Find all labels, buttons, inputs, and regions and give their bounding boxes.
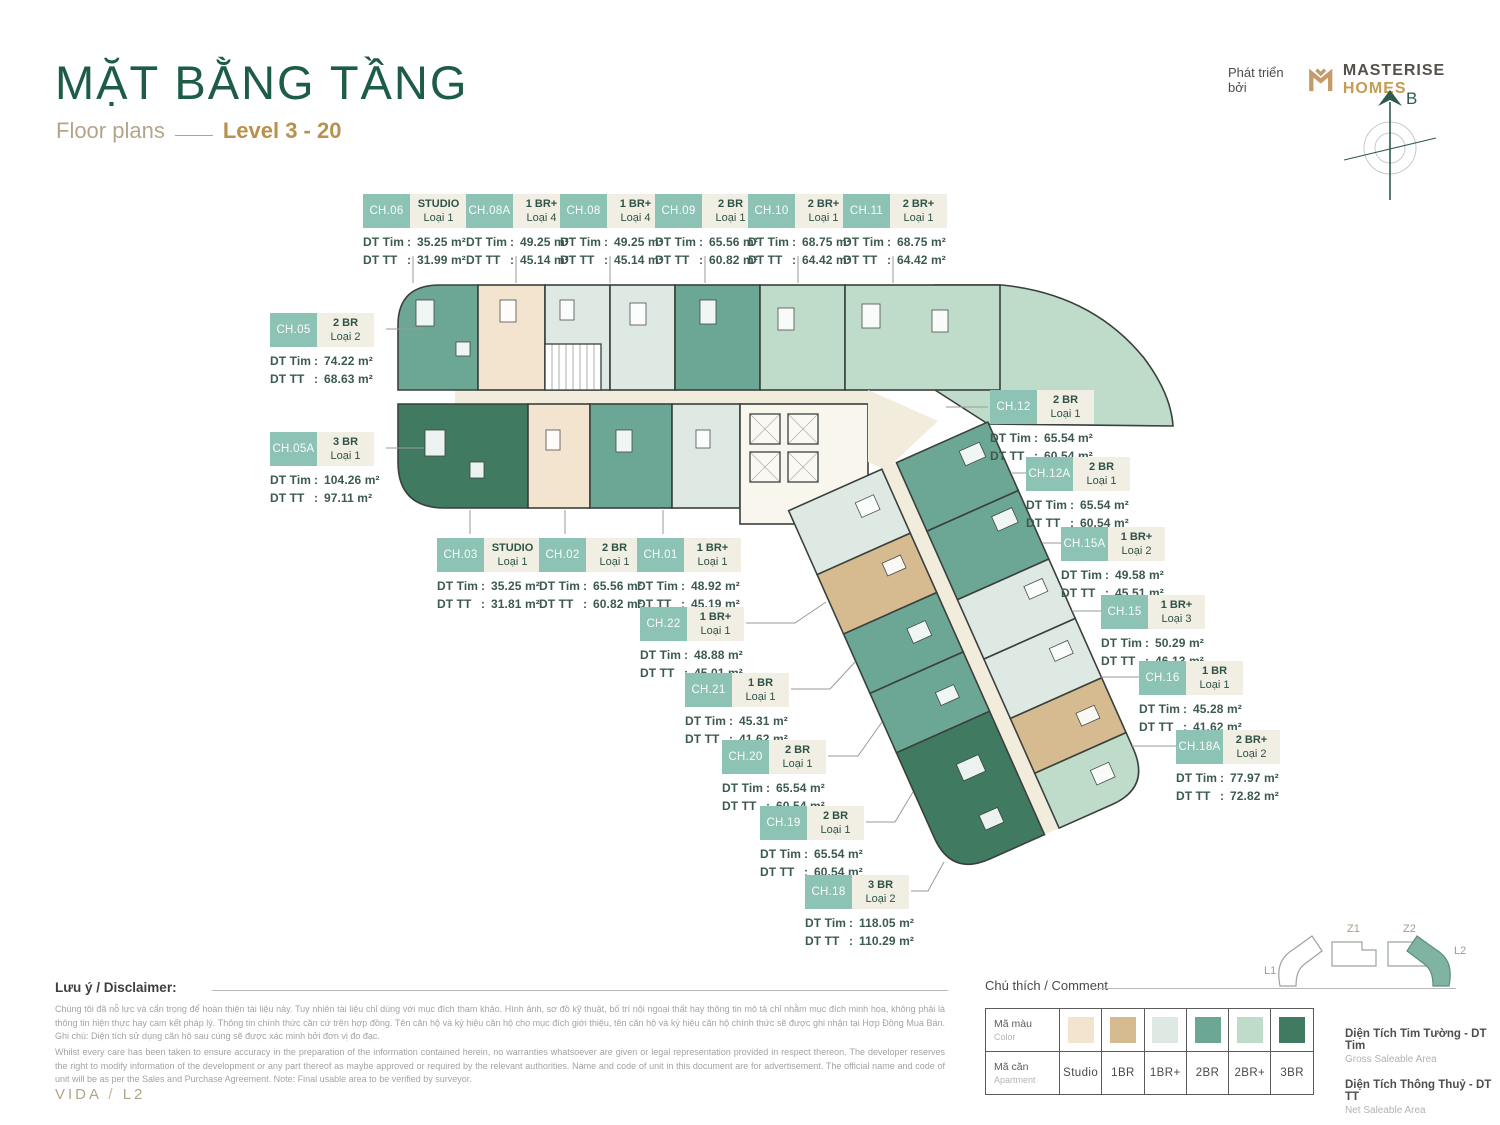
gross-area-row: DT Tim : 74.22 m²: [270, 352, 400, 370]
unit-region-ch08: [610, 285, 675, 390]
unit-type: 2 BR: [1089, 460, 1114, 474]
gross-area-label: DT Tim: [760, 845, 804, 863]
legend-heading: Chú thích / Comment: [985, 978, 1108, 993]
gross-area-row: DT Tim : 77.97 m²: [1176, 769, 1306, 787]
unit-id-badge: CH.03: [437, 538, 484, 572]
unit-type-badge: 1 BR+ Loại 1: [687, 607, 744, 641]
gross-area-label: DT Tim: [437, 577, 481, 595]
unit-callout: CH.18A 2 BR+ Loại 2 DT Tim : 77.97 m² DT…: [1176, 730, 1306, 805]
gross-area-label: DT Tim: [843, 233, 887, 251]
unit-chip: CH.05A 3 BR Loại 1: [270, 432, 374, 466]
unit-variant: Loại 3: [1162, 612, 1192, 626]
unit-chip: CH.08A 1 BR+ Loại 4: [466, 194, 570, 228]
net-area-label: DT TT: [270, 370, 314, 388]
unit-chip: CH.08 1 BR+ Loại 4: [560, 194, 664, 228]
legend-apartment-type: 2BR+: [1234, 1067, 1265, 1079]
unit-type: 2 BR+: [1236, 733, 1268, 747]
legend-apartment-row-label: Mã cănApartment: [986, 1052, 1060, 1095]
unit-chip: CH.20 2 BR Loại 1: [722, 740, 826, 774]
net-area-value: 31.99 m²: [417, 251, 466, 269]
legend-swatch-cell: [1102, 1009, 1144, 1052]
unit-callout: CH.11 2 BR+ Loại 1 DT Tim : 68.75 m² DT …: [843, 194, 973, 269]
net-area-row: DT TT : 64.42 m²: [843, 251, 973, 269]
unit-type-badge: 2 BR Loại 2: [317, 313, 374, 347]
legend-table: Mã màu Color Mã cănApartmentStudio1BR1BR…: [985, 1008, 1314, 1095]
net-area-label: DT TT: [640, 664, 684, 682]
legend-notes: Diện Tích Tim Tường - DT Tim Gross Salea…: [1345, 1028, 1500, 1125]
unit-type: 1 BR: [748, 676, 773, 690]
disclaimer-text-vi: Chúng tôi đã nỗ lực và cẩn trọng để hoàn…: [55, 1003, 945, 1044]
unit-type: 3 BR: [333, 435, 358, 449]
gross-area-row: DT Tim : 50.29 m²: [1101, 634, 1231, 652]
unit-variant: Loại 1: [809, 211, 839, 225]
unit-chip: CH.12A 2 BR Loại 1: [1026, 457, 1130, 491]
unit-id-badge: CH.05A: [270, 432, 317, 466]
unit-chip: CH.16 1 BR Loại 1: [1139, 661, 1243, 695]
unit-region-ch11: [845, 285, 1000, 390]
unit-region-ch05: [398, 285, 478, 390]
locator-label-z1: Z1: [1347, 923, 1360, 935]
unit-id-badge: CH.18: [805, 875, 852, 909]
unit-areas: DT Tim : 68.75 m² DT TT : 64.42 m²: [843, 233, 973, 269]
gross-area-label: DT Tim: [637, 577, 681, 595]
net-area-label: DT TT: [560, 251, 604, 269]
unit-id-badge: CH.15A: [1061, 527, 1108, 561]
unit-type-badge: 3 BR Loại 1: [317, 432, 374, 466]
footer-separator: /: [108, 1086, 115, 1103]
unit-id-badge: CH.20: [722, 740, 769, 774]
unit-type: 2 BR: [718, 197, 743, 211]
unit-variant: Loại 2: [866, 892, 896, 906]
gross-area-label: DT Tim: [466, 233, 510, 251]
unit-type: 2 BR+: [808, 197, 840, 211]
unit-id-badge: CH.02: [539, 538, 586, 572]
gross-area-row: DT Tim : 118.05 m²: [805, 914, 935, 932]
unit-type: 2 BR: [785, 743, 810, 757]
legend-apartment-type: 1BR: [1111, 1067, 1135, 1079]
unit-variant: Loại 1: [600, 555, 630, 569]
unit-chip: CH.11 2 BR+ Loại 1: [843, 194, 947, 228]
unit-variant: Loại 4: [621, 211, 651, 225]
unit-chip: CH.22 1 BR+ Loại 1: [640, 607, 744, 641]
net-area-label: DT TT: [363, 251, 407, 269]
unit-callout: CH.19 2 BR Loại 1 DT Tim : 65.54 m² DT T…: [760, 806, 890, 881]
unit-region-ch01: [672, 404, 740, 508]
unit-id-badge: CH.12: [990, 390, 1037, 424]
unit-callout: CH.22 1 BR+ Loại 1 DT Tim : 48.88 m² DT …: [640, 607, 770, 682]
unit-callout: CH.21 1 BR Loại 1 DT Tim : 45.31 m² DT T…: [685, 673, 815, 748]
net-area-label: DT TT: [270, 489, 314, 507]
unit-type-badge: 2 BR Loại 1: [1037, 390, 1094, 424]
unit-callout: CH.16 1 BR Loại 1 DT Tim : 45.28 m² DT T…: [1139, 661, 1269, 736]
gross-area-value: 45.28 m²: [1193, 700, 1242, 718]
unit-variant: Loại 1: [783, 757, 813, 771]
net-area-label: DT TT: [760, 863, 804, 881]
unit-variant: Loại 1: [698, 555, 728, 569]
gross-area-label: DT Tim: [560, 233, 604, 251]
unit-type-badge: 2 BR Loại 1: [769, 740, 826, 774]
unit-type: 1 BR+: [526, 197, 558, 211]
gross-area-row: DT Tim : 104.26 m²: [270, 471, 400, 489]
unit-variant: Loại 2: [1122, 544, 1152, 558]
unit-variant: Loại 2: [331, 330, 361, 344]
net-area-note: Diện Tích Thông Thuỷ - DT TT Net Saleabl…: [1345, 1079, 1500, 1116]
unit-type: 1 BR+: [1121, 530, 1153, 544]
gross-area-label: DT Tim: [539, 577, 583, 595]
gross-area-value: 48.88 m²: [694, 646, 743, 664]
unit-id-badge: CH.19: [760, 806, 807, 840]
legend-name-cell: 2BR+: [1229, 1052, 1271, 1095]
gross-area-label: DT Tim: [270, 471, 314, 489]
unit-chip: CH.09 2 BR Loại 1: [655, 194, 759, 228]
unit-chip: CH.03 STUDIO Loại 1: [437, 538, 541, 572]
unit-type: 2 BR+: [903, 197, 935, 211]
unit-chip: CH.21 1 BR Loại 1: [685, 673, 789, 707]
legend-swatch: [1110, 1017, 1136, 1043]
legend-swatch-cell: [1271, 1009, 1313, 1052]
unit-id-badge: CH.22: [640, 607, 687, 641]
gross-area-row: DT Tim : 48.88 m²: [640, 646, 770, 664]
gross-area-label: DT Tim: [640, 646, 684, 664]
disclaimer-heading: Lưu ý / Disclaimer:: [55, 980, 177, 995]
unit-type-badge: STUDIO Loại 1: [410, 194, 467, 228]
gross-area-value: 48.92 m²: [691, 577, 740, 595]
legend-apartment-type: 2BR: [1196, 1067, 1220, 1079]
locator-label-l2: L2: [1454, 945, 1466, 957]
net-area-value: 31.81 m²: [491, 595, 540, 613]
net-area-value: 72.82 m²: [1230, 787, 1279, 805]
gross-area-label: DT Tim: [270, 352, 314, 370]
net-area-label: DT TT: [1061, 584, 1105, 602]
gross-area-row: DT Tim : 65.54 m²: [722, 779, 852, 797]
gross-area-row: DT Tim : 45.28 m²: [1139, 700, 1269, 718]
unit-region-ch03: [528, 404, 590, 508]
gross-area-label: DT Tim: [1026, 496, 1070, 514]
unit-variant: Loại 1: [331, 449, 361, 463]
gross-area-value: 77.97 m²: [1230, 769, 1279, 787]
unit-type-badge: 1 BR+ Loại 2: [1108, 527, 1165, 561]
gross-area-row: DT Tim : 65.54 m²: [1026, 496, 1156, 514]
gross-area-label: DT Tim: [655, 233, 699, 251]
unit-type-badge: 2 BR+ Loại 1: [890, 194, 947, 228]
net-area-label: DT TT: [1176, 787, 1220, 805]
building-locator-map: L1 Z1 Z2 L2: [1262, 912, 1467, 997]
unit-callout: CH.12 2 BR Loại 1 DT Tim : 65.54 m² DT T…: [990, 390, 1120, 465]
legend-swatch-cell: [1229, 1009, 1271, 1052]
unit-id-badge: CH.21: [685, 673, 732, 707]
gross-area-value: 50.29 m²: [1155, 634, 1204, 652]
unit-variant: Loại 1: [1051, 407, 1081, 421]
footer-project: VIDA: [55, 1086, 101, 1103]
unit-type: 1 BR+: [697, 541, 729, 555]
gross-area-label: DT Tim: [1101, 634, 1145, 652]
unit-type-badge: 2 BR Loại 1: [807, 806, 864, 840]
gross-area-value: 65.54 m²: [814, 845, 863, 863]
unit-type-badge: 2 BR+ Loại 2: [1223, 730, 1280, 764]
unit-variant: Loại 4: [527, 211, 557, 225]
legend-swatch: [1237, 1017, 1263, 1043]
legend-swatch-cell: [1187, 1009, 1229, 1052]
gross-area-label: DT Tim: [1061, 566, 1105, 584]
unit-id-badge: CH.11: [843, 194, 890, 228]
unit-variant: Loại 2: [1237, 747, 1267, 761]
disclaimer-rule: [212, 990, 948, 991]
gross-area-row: DT Tim : 45.31 m²: [685, 712, 815, 730]
unit-chip: CH.19 2 BR Loại 1: [760, 806, 864, 840]
unit-id-badge: CH.01: [637, 538, 684, 572]
unit-id-badge: CH.08A: [466, 194, 513, 228]
stairwell: [545, 344, 601, 390]
gross-area-value: 35.25 m²: [417, 233, 466, 251]
unit-callout: CH.15 1 BR+ Loại 3 DT Tim : 50.29 m² DT …: [1101, 595, 1231, 670]
net-area-value: 97.11 m²: [324, 489, 372, 507]
gross-area-value: 49.58 m²: [1115, 566, 1164, 584]
unit-type-badge: STUDIO Loại 1: [484, 538, 541, 572]
legend-apartment-type: 1BR+: [1150, 1067, 1181, 1079]
legend-name-cell: 2BR: [1187, 1052, 1229, 1095]
gross-area-value: 65.56 m²: [593, 577, 642, 595]
unit-type: 1 BR: [1202, 664, 1227, 678]
unit-areas: DT Tim : 104.26 m² DT TT : 97.11 m²: [270, 471, 400, 507]
net-area-row: DT TT : 110.29 m²: [805, 932, 935, 950]
gross-area-value: 65.54 m²: [1080, 496, 1129, 514]
unit-variant: Loại 1: [821, 823, 851, 837]
gross-area-value: 65.54 m²: [776, 779, 825, 797]
unit-callout: CH.01 1 BR+ Loại 1 DT Tim : 48.92 m² DT …: [637, 538, 767, 613]
unit-variant: Loại 1: [904, 211, 934, 225]
unit-type: 1 BR+: [620, 197, 652, 211]
unit-variant: Loại 1: [1087, 474, 1117, 488]
gross-area-note: Diện Tích Tim Tường - DT Tim Gross Salea…: [1345, 1028, 1500, 1065]
corridor-horizontal: [455, 390, 868, 404]
unit-type: 1 BR+: [1161, 598, 1193, 612]
unit-id-badge: CH.05: [270, 313, 317, 347]
unit-callout: CH.05 2 BR Loại 2 DT Tim : 74.22 m² DT T…: [270, 313, 400, 388]
unit-id-badge: CH.16: [1139, 661, 1186, 695]
net-area-label: DT TT: [805, 932, 849, 950]
net-area-row: DT TT : 97.11 m²: [270, 489, 400, 507]
legend-swatch: [1279, 1017, 1305, 1043]
unit-type-badge: 2 BR Loại 1: [586, 538, 643, 572]
net-area-value: 68.63 m²: [324, 370, 373, 388]
unit-type: 3 BR: [868, 878, 893, 892]
unit-variant: Loại 1: [498, 555, 528, 569]
gross-area-label: DT Tim: [363, 233, 407, 251]
net-area-value: 64.42 m²: [897, 251, 946, 269]
footer-zone: L2: [123, 1086, 146, 1103]
legend-apartment-type: Studio: [1063, 1067, 1098, 1079]
legend-apartment-type: 3BR: [1280, 1067, 1304, 1079]
unit-type: STUDIO: [492, 541, 534, 555]
unit-chip: CH.12 2 BR Loại 1: [990, 390, 1094, 424]
unit-region-ch02: [590, 404, 672, 508]
legend-name-cell: 3BR: [1271, 1052, 1313, 1095]
legend-name-cell: 1BR: [1102, 1052, 1144, 1095]
unit-type-badge: 1 BR Loại 1: [1186, 661, 1243, 695]
net-area-label: DT TT: [539, 595, 583, 613]
unit-type: 2 BR: [1053, 393, 1078, 407]
unit-region-ch05a: [398, 404, 528, 508]
net-area-label: DT TT: [655, 251, 699, 269]
gross-area-row: DT Tim : 68.75 m²: [843, 233, 973, 251]
unit-chip: CH.06 STUDIO Loại 1: [363, 194, 467, 228]
legend-swatch: [1195, 1017, 1221, 1043]
unit-type: 1 BR+: [700, 610, 732, 624]
unit-id-badge: CH.10: [748, 194, 795, 228]
unit-callout: CH.15A 1 BR+ Loại 2 DT Tim : 49.58 m² DT…: [1061, 527, 1191, 602]
net-area-label: DT TT: [466, 251, 510, 269]
unit-callout: CH.20 2 BR Loại 1 DT Tim : 65.54 m² DT T…: [722, 740, 852, 815]
unit-type-badge: 2 BR Loại 1: [1073, 457, 1130, 491]
unit-id-badge: CH.18A: [1176, 730, 1223, 764]
unit-id-badge: CH.15: [1101, 595, 1148, 629]
gross-area-value: 45.31 m²: [739, 712, 788, 730]
unit-chip: CH.15A 1 BR+ Loại 2: [1061, 527, 1165, 561]
unit-type: 2 BR: [823, 809, 848, 823]
unit-callout: CH.12A 2 BR Loại 1 DT Tim : 65.54 m² DT …: [1026, 457, 1156, 532]
locator-building-l1: [1279, 936, 1322, 986]
gross-area-value: 35.25 m²: [491, 577, 540, 595]
unit-type-badge: 1 BR Loại 1: [732, 673, 789, 707]
gross-area-label: DT Tim: [1176, 769, 1220, 787]
gross-area-label: DT Tim: [722, 779, 766, 797]
unit-variant: Loại 1: [1200, 678, 1230, 692]
unit-type-badge: 1 BR+ Loại 3: [1148, 595, 1205, 629]
net-area-label: DT TT: [843, 251, 887, 269]
net-area-row: DT TT : 72.82 m²: [1176, 787, 1306, 805]
footer-project-code: VIDA / L2: [55, 1086, 145, 1103]
unit-chip: CH.01 1 BR+ Loại 1: [637, 538, 741, 572]
unit-areas: DT Tim : 118.05 m² DT TT : 110.29 m²: [805, 914, 935, 950]
unit-type-badge: 1 BR+ Loại 1: [684, 538, 741, 572]
disclaimer-text-en: Whilst every care has been taken to ensu…: [55, 1046, 945, 1087]
unit-areas: DT Tim : 74.22 m² DT TT : 68.63 m²: [270, 352, 400, 388]
unit-chip: CH.18A 2 BR+ Loại 2: [1176, 730, 1280, 764]
legend-name-cell: Studio: [1060, 1052, 1102, 1095]
gross-area-value: 74.22 m²: [324, 352, 373, 370]
gross-area-value: 104.26 m²: [324, 471, 380, 489]
gross-area-label: DT Tim: [805, 914, 849, 932]
unit-chip: CH.10 2 BR+ Loại 1: [748, 194, 852, 228]
gross-area-row: DT Tim : 49.58 m²: [1061, 566, 1191, 584]
net-area-label: DT TT: [437, 595, 481, 613]
unit-variant: Loại 1: [701, 624, 731, 638]
gross-area-row: DT Tim : 48.92 m²: [637, 577, 767, 595]
floor-plan-page: { "header": { "title": "MẶT BẰNG TẦNG", …: [0, 0, 1500, 1125]
legend-name-cell: 1BR+: [1145, 1052, 1187, 1095]
legend-swatch: [1152, 1017, 1178, 1043]
gross-area-value: 68.75 m²: [897, 233, 946, 251]
unit-callout: CH.05A 3 BR Loại 1 DT Tim : 104.26 m² DT…: [270, 432, 400, 507]
legend-color-row-label: Mã màu Color: [986, 1009, 1060, 1052]
legend-swatch-cell: [1060, 1009, 1102, 1052]
locator-label-z2: Z2: [1403, 923, 1416, 935]
gross-area-row: DT Tim : 65.54 m²: [760, 845, 890, 863]
locator-building-z1: [1332, 942, 1376, 966]
gross-area-label: DT Tim: [685, 712, 729, 730]
unit-variant: Loại 1: [424, 211, 454, 225]
unit-chip: CH.05 2 BR Loại 2: [270, 313, 374, 347]
unit-type: STUDIO: [418, 197, 460, 211]
gross-area-label: DT Tim: [990, 429, 1034, 447]
unit-id-badge: CH.09: [655, 194, 702, 228]
net-area-value: 110.29 m²: [859, 932, 914, 950]
unit-region-ch09: [675, 285, 760, 390]
unit-chip: CH.18 3 BR Loại 2: [805, 875, 909, 909]
gross-area-value: 118.05 m²: [859, 914, 914, 932]
gross-area-value: 65.54 m²: [1044, 429, 1093, 447]
locator-label-l1: L1: [1264, 965, 1276, 977]
net-area-value: 60.82 m²: [593, 595, 642, 613]
unit-callout: CH.18 3 BR Loại 2 DT Tim : 118.05 m² DT …: [805, 875, 935, 950]
unit-type: 2 BR: [602, 541, 627, 555]
unit-chip: CH.15 1 BR+ Loại 3: [1101, 595, 1205, 629]
unit-areas: DT Tim : 77.97 m² DT TT : 72.82 m²: [1176, 769, 1306, 805]
unit-region-ch10: [760, 285, 845, 390]
gross-area-label: DT Tim: [1139, 700, 1183, 718]
unit-chip: CH.02 2 BR Loại 1: [539, 538, 643, 572]
legend-swatch: [1068, 1017, 1094, 1043]
unit-id-badge: CH.12A: [1026, 457, 1073, 491]
gross-area-label: DT Tim: [748, 233, 792, 251]
net-area-row: DT TT : 68.63 m²: [270, 370, 400, 388]
legend-swatch-cell: [1145, 1009, 1187, 1052]
unit-type: 2 BR: [333, 316, 358, 330]
gross-area-row: DT Tim : 65.54 m²: [990, 429, 1120, 447]
unit-variant: Loại 1: [746, 690, 776, 704]
unit-variant: Loại 1: [716, 211, 746, 225]
unit-id-badge: CH.08: [560, 194, 607, 228]
net-area-label: DT TT: [748, 251, 792, 269]
unit-type-badge: 3 BR Loại 2: [852, 875, 909, 909]
unit-id-badge: CH.06: [363, 194, 410, 228]
